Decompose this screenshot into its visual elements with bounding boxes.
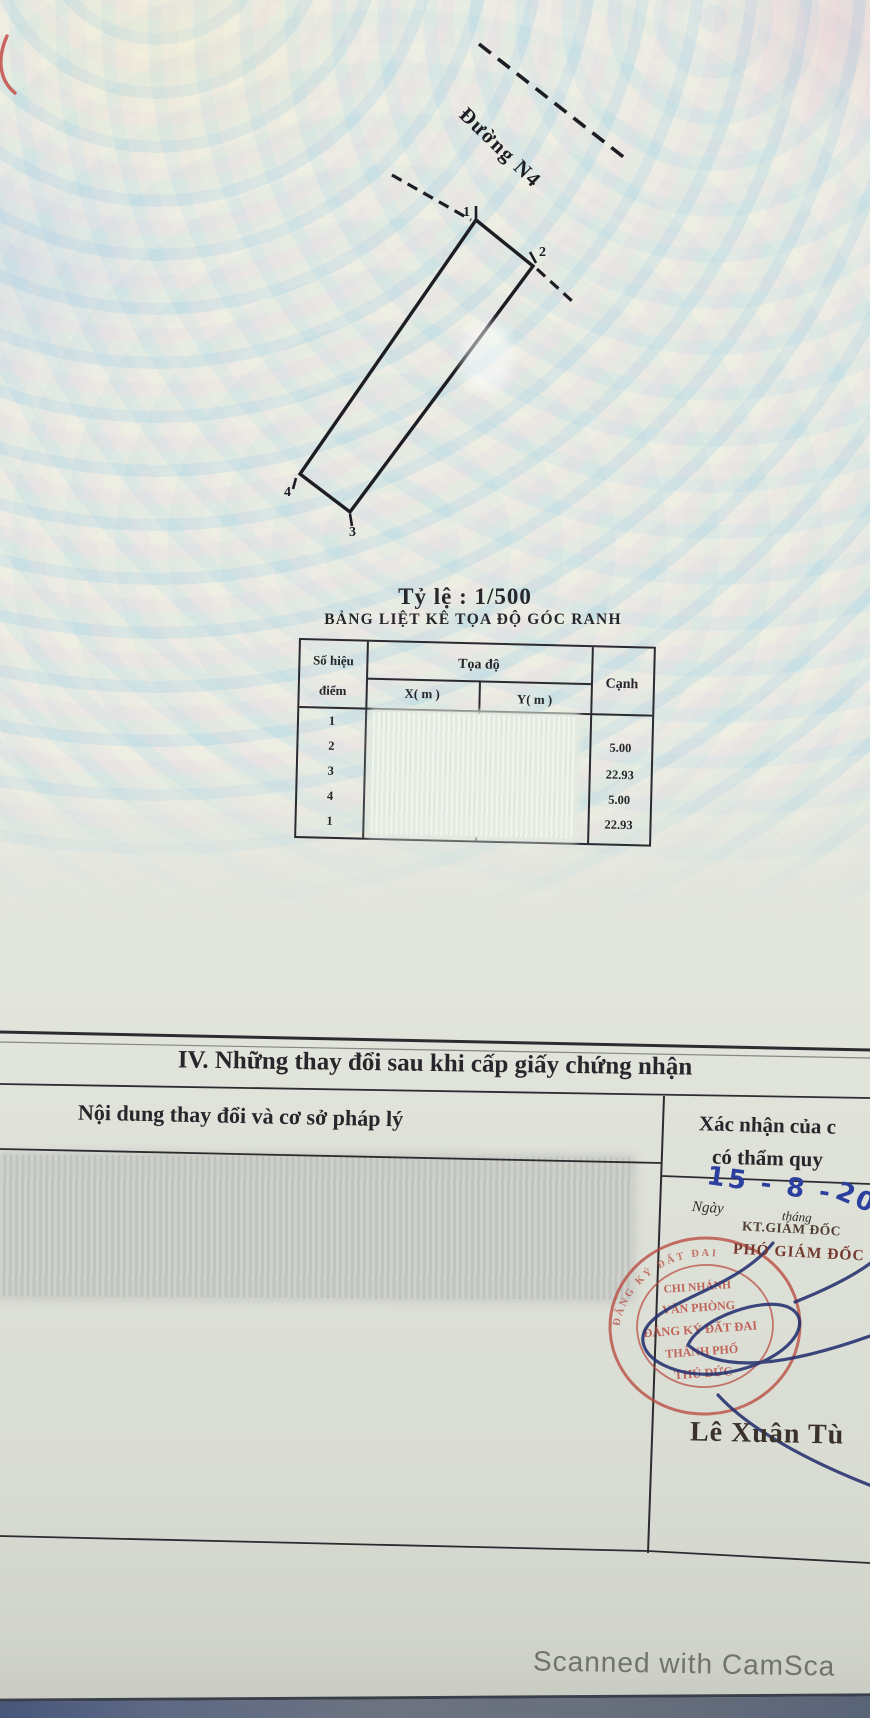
edge-length: 22.93 [589,767,651,784]
section-iv-heading: IV. Những thay đổi sau khi cấp giấy chứn… [70,1045,800,1083]
col-header-point-number-1: Số hiệu [300,652,366,670]
coordinate-table-title: BẢNG LIỆT KÊ TỌA ĐỘ GÓC RANH [308,611,638,629]
edge-length: 5.00 [589,740,651,757]
redacted-change-content [0,1154,632,1299]
heading-underline [0,1084,870,1098]
edge-length: 22.93 [587,817,649,834]
camscanner-watermark: Scanned with CamSca [533,1645,836,1682]
left-column-header: Nội dung thay đổi và cơ sở pháp lý [78,1100,404,1133]
stamp-line-3: ĐĂNG KÝ ĐẤT ĐAI [643,1317,758,1340]
col-header-point-number-2: điểm [300,682,366,700]
col-header-edge: Cạnh [591,676,653,694]
col-header-coordinates: Tọa độ [366,655,591,676]
edge-length: 5.00 [588,792,650,809]
col-header-y: Y( m ) [478,690,590,709]
title-kt-giam-doc: KT.GIÁM ĐỐC [742,1218,842,1239]
boundary-coordinate-table: Số hiệu điểm Tọa độ X( m ) Y( m ) Cạnh 1… [294,638,656,847]
stamp-line-1: CHI NHÁNH [663,1277,731,1296]
stamp-line-2: VĂN PHÒNG [662,1298,736,1317]
col-header-x: X( m ) [365,685,478,704]
point-number: 1 [296,813,362,830]
stamp-line-5: THỦ ĐỨC [674,1364,733,1382]
scanned-land-certificate-page: Đường N4 1 2 3 4 ĐĂNG KÝ ĐẤT ĐAI CHI NHÁ… [0,0,870,1718]
point-number: 4 [297,788,363,805]
map-scale-label: Tỷ lệ : 1/500 [335,584,595,610]
day-label: Ngày [691,1199,724,1218]
point-number: 1 [299,713,365,730]
point-number: 3 [298,763,364,780]
redacted-coordinate-values [370,712,577,839]
point-number: 2 [298,738,364,755]
right-column-header-line1: Xác nhận của c [660,1110,870,1141]
title-pho-giam-doc: PHÓ GIÁM ĐỐC [733,1241,865,1266]
scan-edge-band [0,1693,870,1718]
section-bottom-rule [0,1536,870,1563]
stamp-line-4: THÀNH PHỐ [665,1341,739,1361]
signer-name: Lê Xuân Tù [690,1416,845,1451]
